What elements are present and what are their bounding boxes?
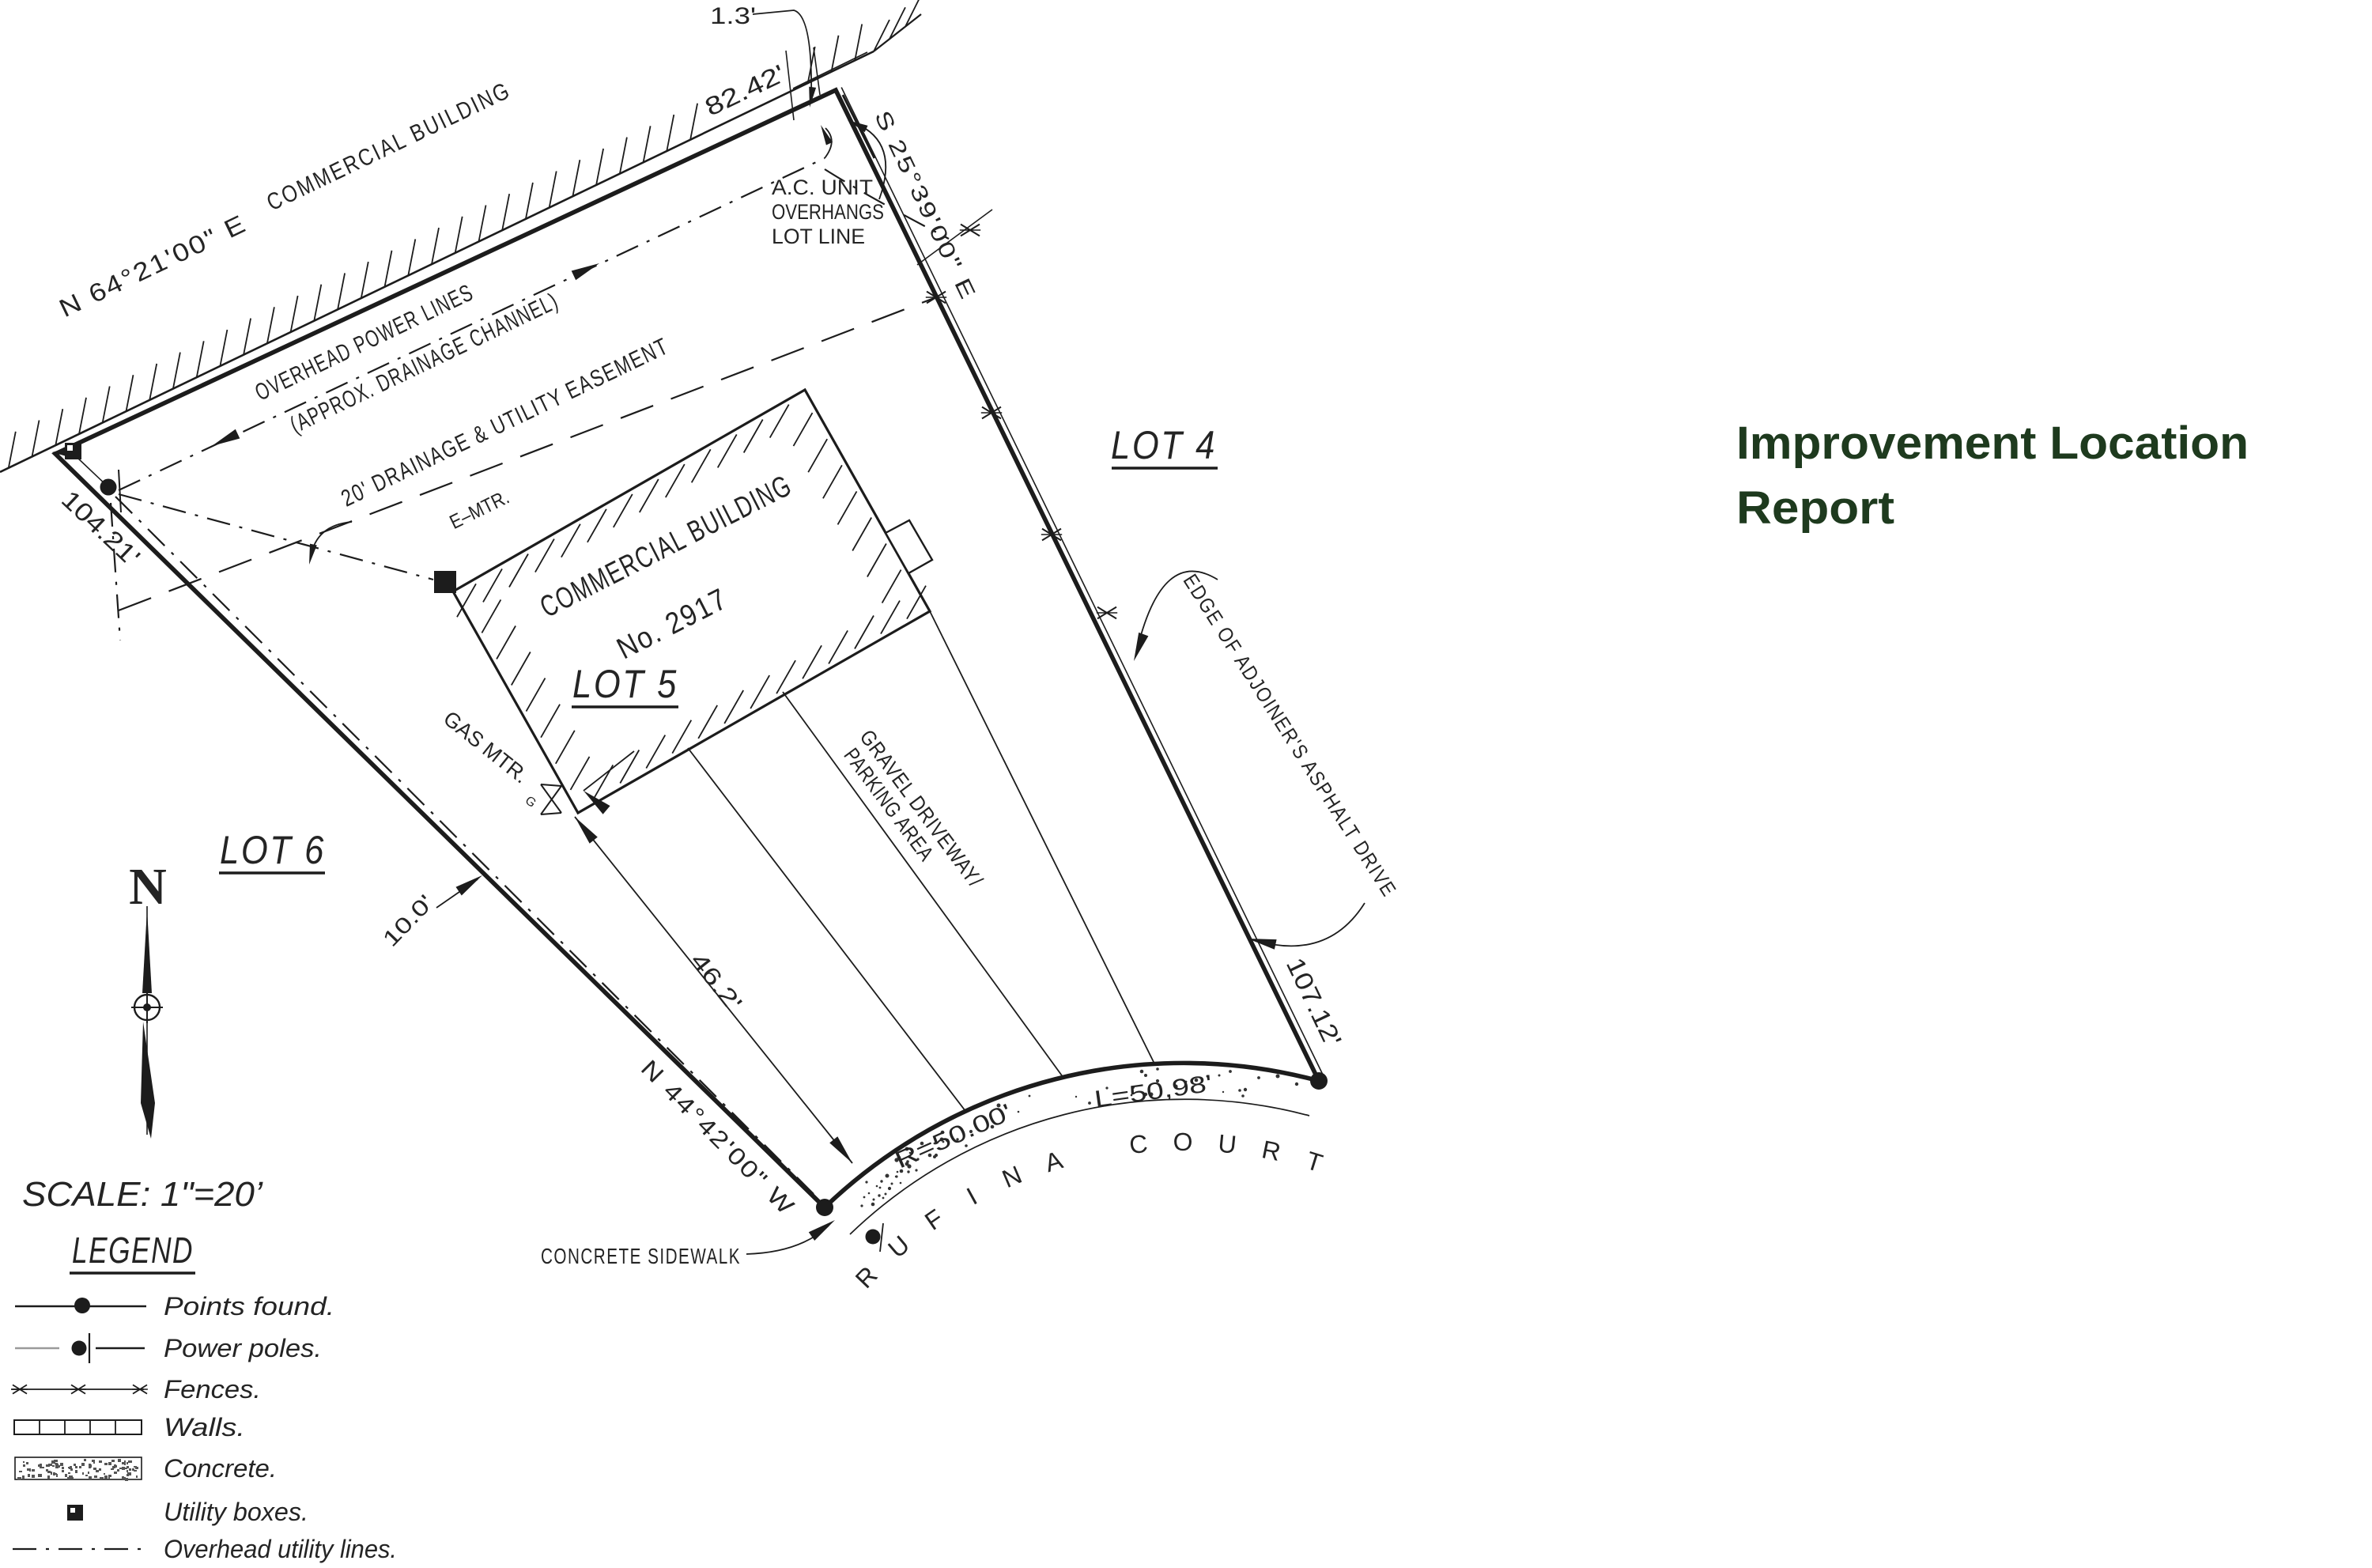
- svg-text:SCALE: 1"=20’: SCALE: 1"=20’: [22, 1175, 263, 1214]
- svg-text:Power poles.: Power poles.: [164, 1334, 322, 1362]
- svg-text:LOT 5: LOT 5: [572, 662, 678, 706]
- svg-text:LOT 4: LOT 4: [1111, 423, 1217, 467]
- svg-text:LEGEND: LEGEND: [72, 1230, 194, 1271]
- svg-text:Overhead utility lines.: Overhead utility lines.: [164, 1535, 397, 1563]
- svg-text:CONCRETE SIDEWALK: CONCRETE SIDEWALK: [541, 1244, 741, 1268]
- svg-text:Improvement Location: Improvement Location: [1736, 418, 2249, 469]
- svg-text:1.3': 1.3': [710, 3, 756, 29]
- svg-text:OVERHANGS: OVERHANGS: [772, 200, 884, 224]
- svg-text:N: N: [129, 858, 167, 916]
- svg-text:O: O: [1173, 1128, 1193, 1156]
- svg-text:A.C. UNIT: A.C. UNIT: [772, 176, 873, 199]
- svg-text:C: C: [1128, 1129, 1150, 1159]
- svg-text:Points found.: Points found.: [164, 1292, 334, 1321]
- svg-text:Fences.: Fences.: [164, 1375, 261, 1404]
- svg-text:LOT 6: LOT 6: [220, 828, 326, 872]
- svg-text:Utility boxes.: Utility boxes.: [164, 1498, 308, 1526]
- svg-text:LOT LINE: LOT LINE: [772, 225, 865, 248]
- svg-text:Walls.: Walls.: [164, 1413, 245, 1441]
- svg-text:Report: Report: [1736, 482, 1894, 534]
- svg-text:Concrete.: Concrete.: [164, 1454, 277, 1483]
- svg-text:U: U: [1217, 1129, 1238, 1159]
